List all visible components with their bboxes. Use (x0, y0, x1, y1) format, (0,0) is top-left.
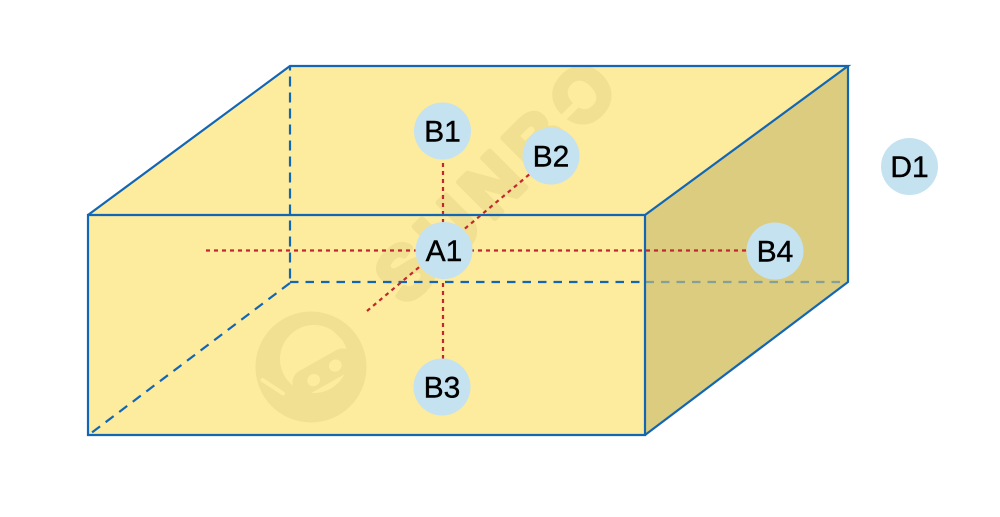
svg-text:B3: B3 (424, 372, 461, 405)
svg-text:B4: B4 (757, 236, 794, 269)
svg-text:D1: D1 (890, 151, 928, 184)
svg-text:B1: B1 (424, 116, 461, 149)
svg-text:A1: A1 (426, 235, 463, 268)
svg-text:B2: B2 (533, 141, 570, 174)
